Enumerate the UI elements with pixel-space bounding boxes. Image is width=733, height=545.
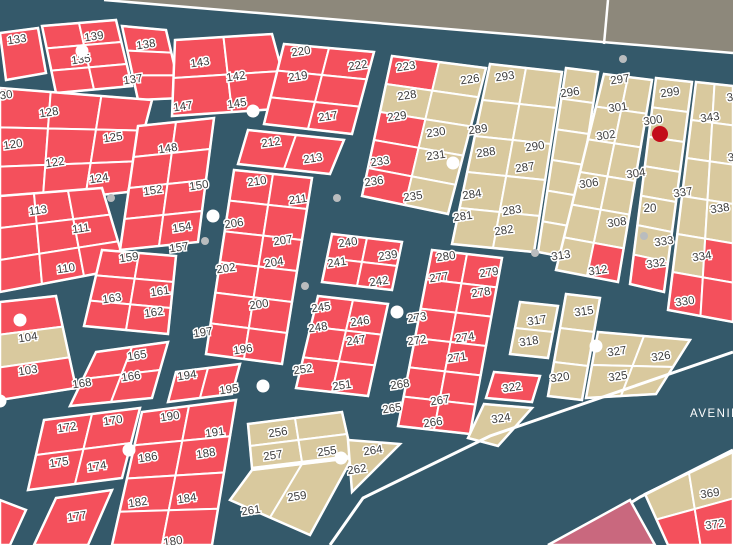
parcel-cell[interactable] <box>708 161 733 204</box>
parcel-cell[interactable] <box>129 153 172 188</box>
vertex-dot-gray <box>201 237 209 245</box>
parcel-cell[interactable] <box>172 118 214 153</box>
parcel-cell[interactable] <box>112 510 169 545</box>
parcel-cell[interactable] <box>254 267 297 303</box>
parcel-cell[interactable] <box>701 277 733 322</box>
vertex-dot-gray <box>531 249 539 257</box>
parcel-label: 111 <box>72 222 91 236</box>
avenue-name-label: AVENIDA <box>690 408 733 420</box>
vertex-dot-white <box>76 45 89 58</box>
parcel-cell[interactable] <box>169 473 224 511</box>
parcel-cell[interactable] <box>211 293 254 329</box>
parcel-cell[interactable] <box>519 68 562 108</box>
parcel-cell[interactable] <box>513 104 557 144</box>
parcel-label: 211 <box>288 193 308 207</box>
parcel-cell[interactable] <box>668 272 703 316</box>
parcel-label: 113 <box>28 204 48 218</box>
vertex-dot-white <box>207 210 220 223</box>
vertex-dot-white <box>247 105 260 118</box>
parcel-cell[interactable] <box>120 215 163 250</box>
parcel-label: 3 <box>727 152 733 165</box>
vertex-dot-gray <box>619 55 627 63</box>
street-number-label: 20 <box>644 203 657 215</box>
vertex-dot-gray <box>301 282 309 290</box>
vertex-dot-white <box>335 452 348 465</box>
vertex-dot-white <box>391 306 404 319</box>
parcel-cell[interactable] <box>135 253 176 282</box>
vertex-dot-white <box>123 444 136 457</box>
vertex-dot-white <box>14 314 27 327</box>
vertex-dot-white <box>590 340 603 353</box>
selected-point-marker[interactable] <box>652 126 668 142</box>
vertex-dot-gray <box>333 194 341 202</box>
parcel-cell[interactable] <box>557 99 594 134</box>
parcel-label: 180 <box>163 535 184 545</box>
parcel-cell[interactable] <box>42 23 84 48</box>
vertex-dot-gray <box>107 194 115 202</box>
vertex-dot-gray <box>640 232 648 240</box>
map-canvas[interactable]: 1331391351381371301281201221251241151131… <box>0 0 733 545</box>
parcel-cell[interactable] <box>421 279 462 312</box>
parcel-cell[interactable] <box>220 231 263 266</box>
parcel-cell[interactable] <box>127 51 176 76</box>
parcel-label: 3 <box>726 92 733 105</box>
map-svg[interactable]: 1331391351381371301281201221251241151131… <box>0 0 733 545</box>
parcel-label: 110 <box>56 262 76 276</box>
vertex-dot-white <box>447 157 460 170</box>
vertex-dot-white <box>257 380 270 393</box>
